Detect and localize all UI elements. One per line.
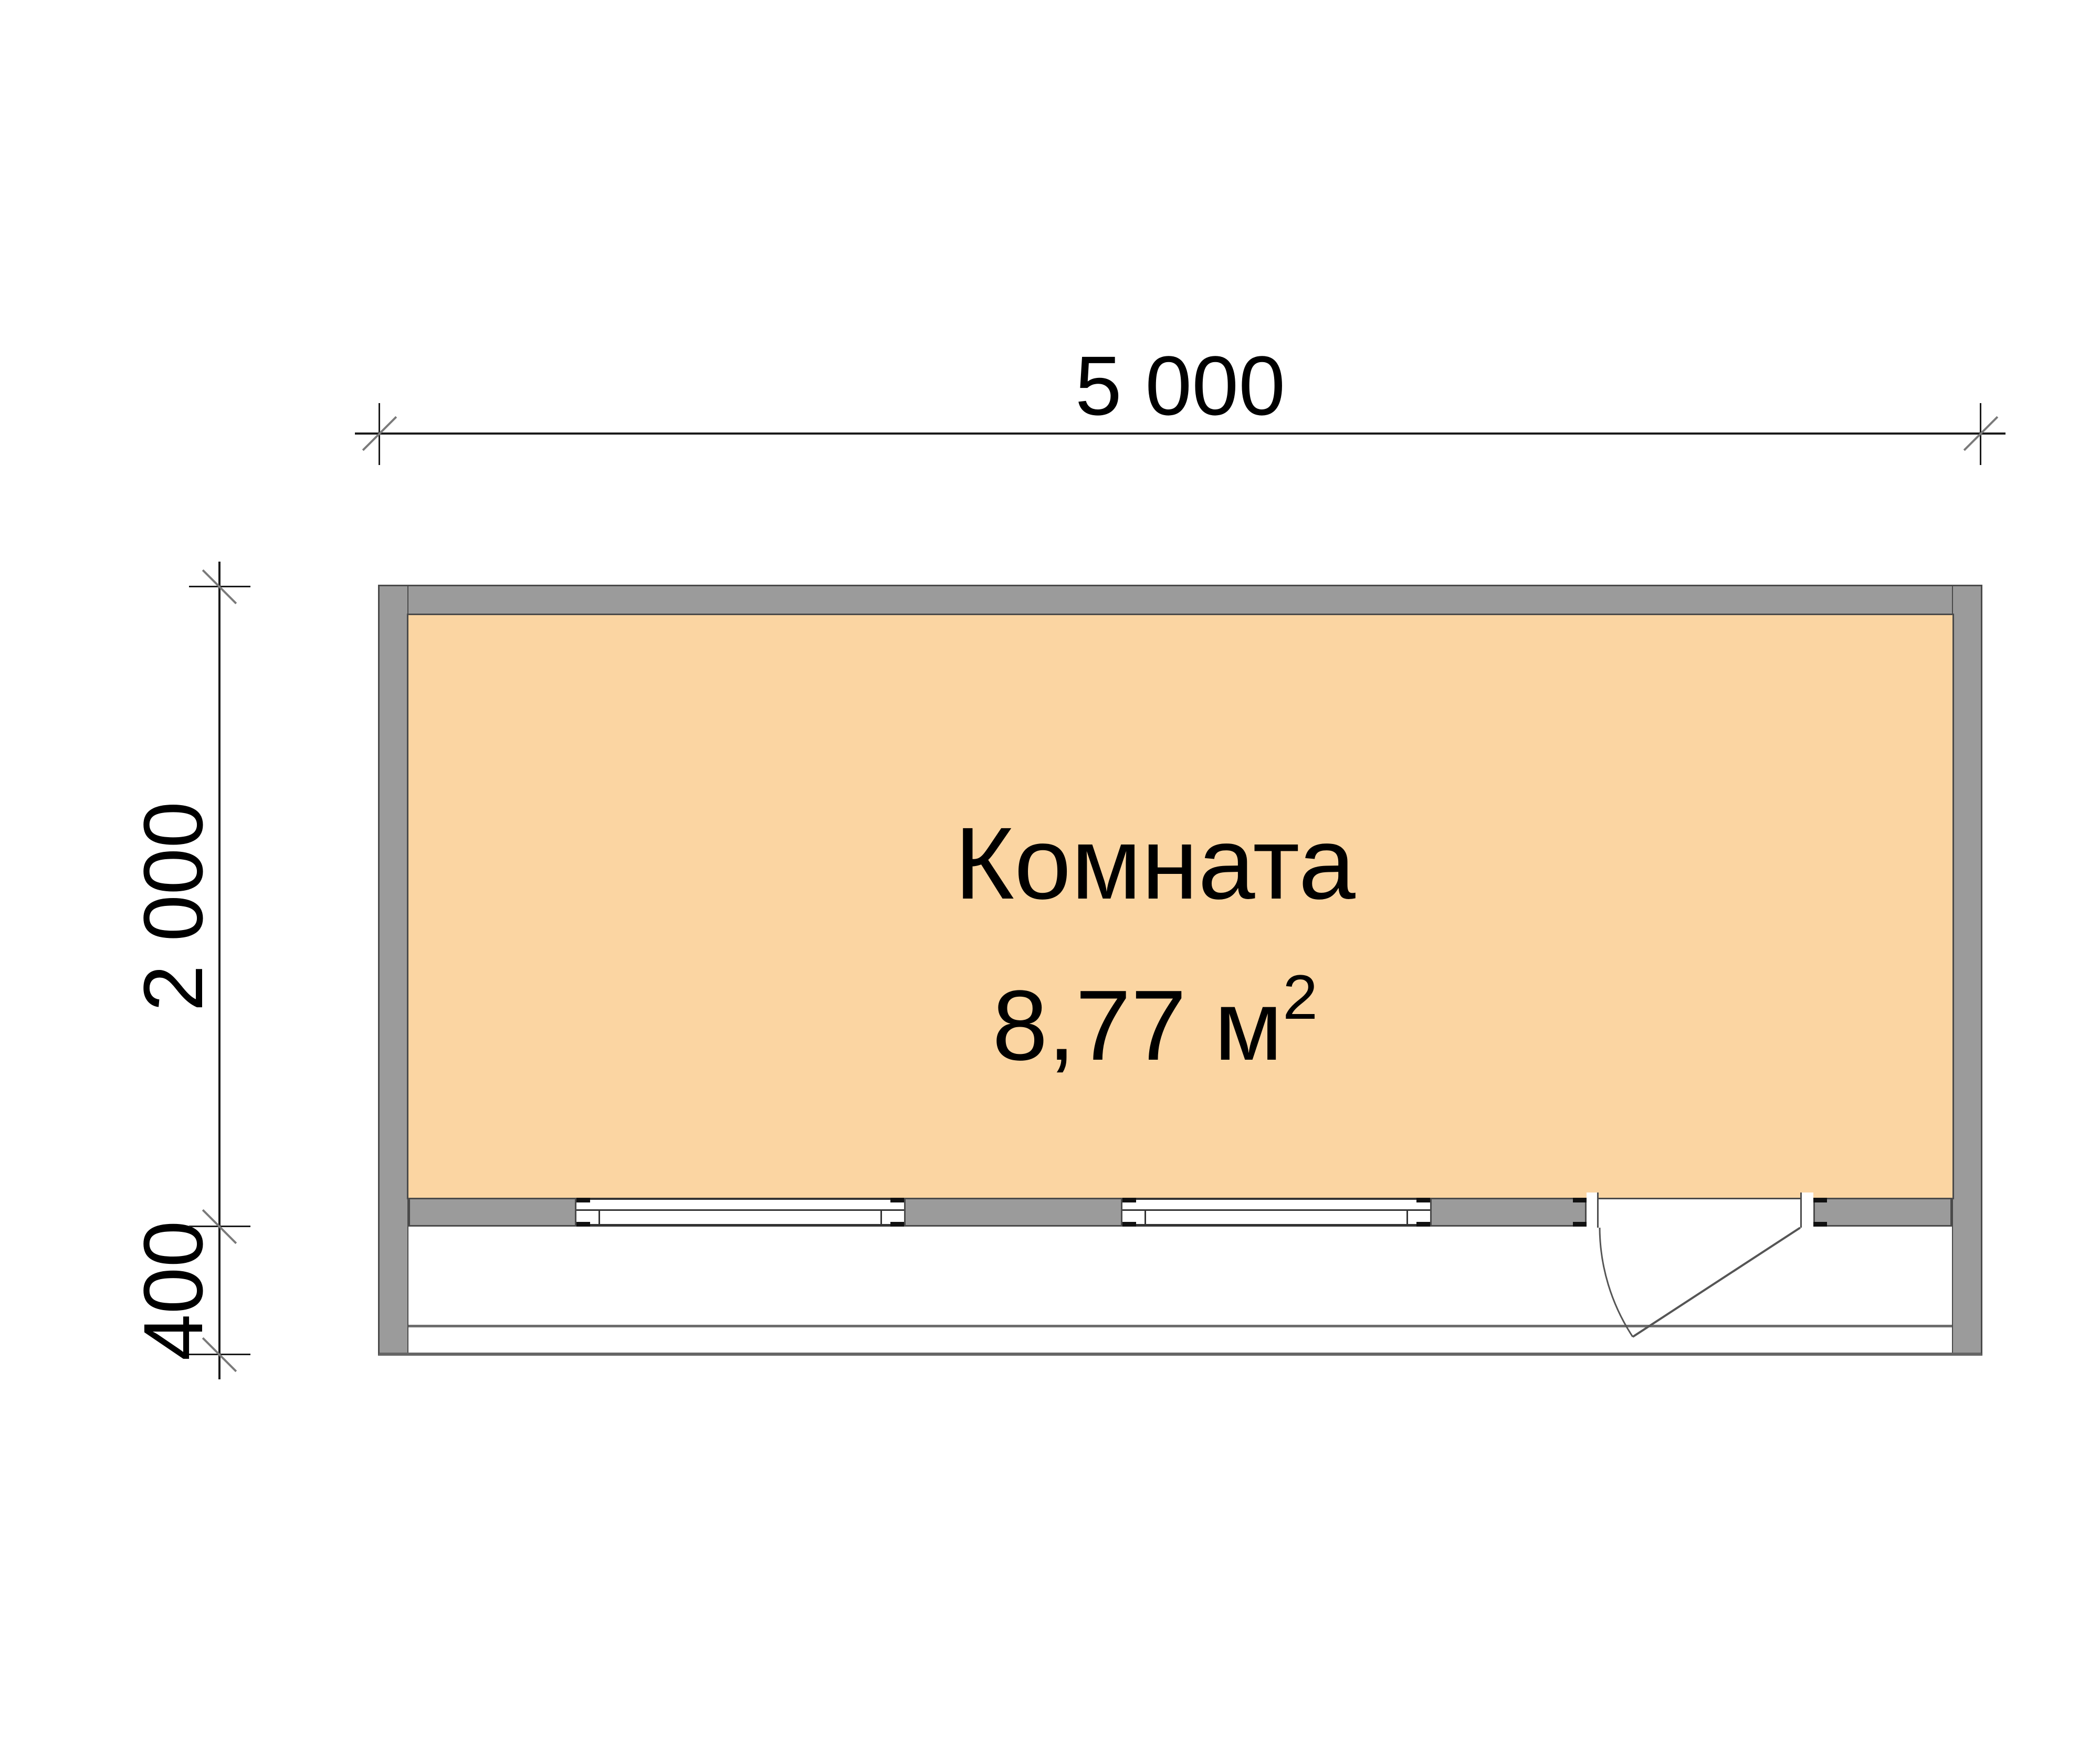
window-2-mullion-right — [1406, 1211, 1408, 1224]
room-area-superscript: 2 — [1283, 962, 1318, 1032]
window-1-mullion-left — [598, 1211, 600, 1224]
dimension-depth-label: 2 000 — [131, 749, 215, 1064]
wall-right — [1952, 586, 1981, 1353]
lintel-cap — [890, 1222, 904, 1227]
wall-pier-3 — [1430, 1198, 1587, 1227]
door-swing-arc — [1600, 1228, 1633, 1337]
window-2 — [1122, 1198, 1430, 1227]
wall-top — [380, 586, 1981, 615]
room-name-label: Комната — [892, 811, 1417, 916]
window-2-sill-line — [1122, 1209, 1430, 1211]
lintel-cap — [1122, 1222, 1136, 1227]
window-1 — [576, 1198, 904, 1227]
floor-plan-canvas: 5 000 2 000 400 — [0, 0, 2100, 1752]
window-1-sill-line — [576, 1209, 904, 1211]
dimension-veranda-label: 400 — [131, 1133, 215, 1448]
window-2-mullion-left — [1144, 1211, 1146, 1224]
room-area-value: 8,77 м — [992, 970, 1283, 1081]
dimension-depth-line — [218, 562, 220, 1379]
lintel-cap — [1573, 1222, 1587, 1227]
lintel-cap — [1122, 1198, 1136, 1202]
lintel-cap — [890, 1198, 904, 1202]
lintel-cap — [576, 1222, 590, 1227]
door-leaf — [1633, 1228, 1800, 1337]
lintel-cap — [1416, 1222, 1430, 1227]
window-1-mullion-right — [880, 1211, 882, 1224]
wall-pier-1 — [408, 1198, 576, 1227]
dimension-width-label: 5 000 — [1023, 344, 1338, 428]
lintel-cap — [576, 1198, 590, 1202]
wall-pier-2 — [904, 1198, 1122, 1227]
door-swing — [1585, 1197, 1848, 1365]
lintel-cap — [1416, 1198, 1430, 1202]
room-area-label: 8,77 м2 — [892, 945, 1417, 1078]
wall-left — [380, 586, 408, 1353]
lintel-cap — [1573, 1198, 1587, 1202]
dimension-width-line — [355, 432, 2005, 435]
